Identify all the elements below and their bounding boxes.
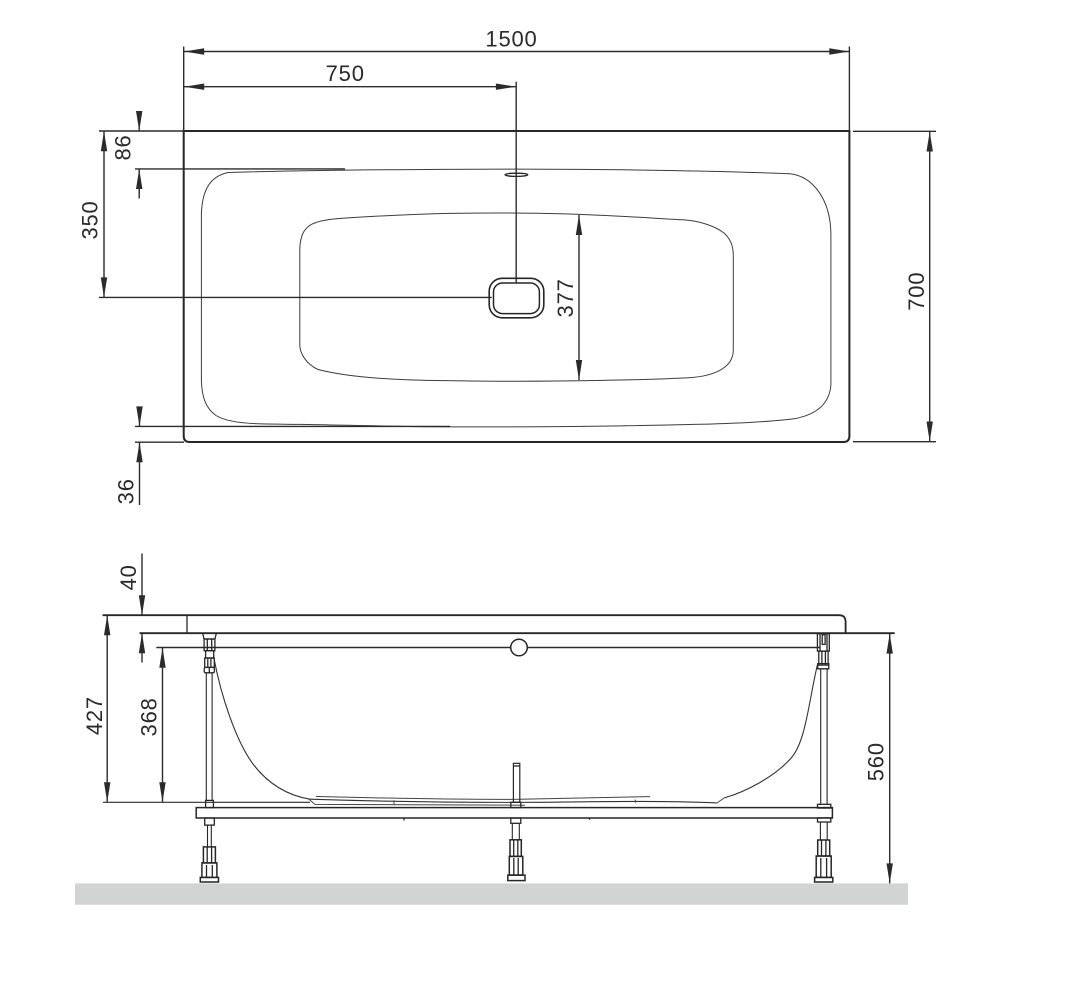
svg-text:36: 36 — [114, 478, 139, 504]
svg-text:1500: 1500 — [485, 26, 537, 51]
svg-text:86: 86 — [111, 134, 136, 160]
svg-text:427: 427 — [82, 696, 107, 735]
svg-text:560: 560 — [864, 742, 889, 781]
svg-text:700: 700 — [904, 272, 929, 311]
svg-text:350: 350 — [78, 200, 103, 239]
svg-text:377: 377 — [553, 278, 578, 317]
svg-text:368: 368 — [137, 697, 162, 736]
svg-text:40: 40 — [116, 564, 141, 590]
svg-text:750: 750 — [326, 61, 365, 86]
